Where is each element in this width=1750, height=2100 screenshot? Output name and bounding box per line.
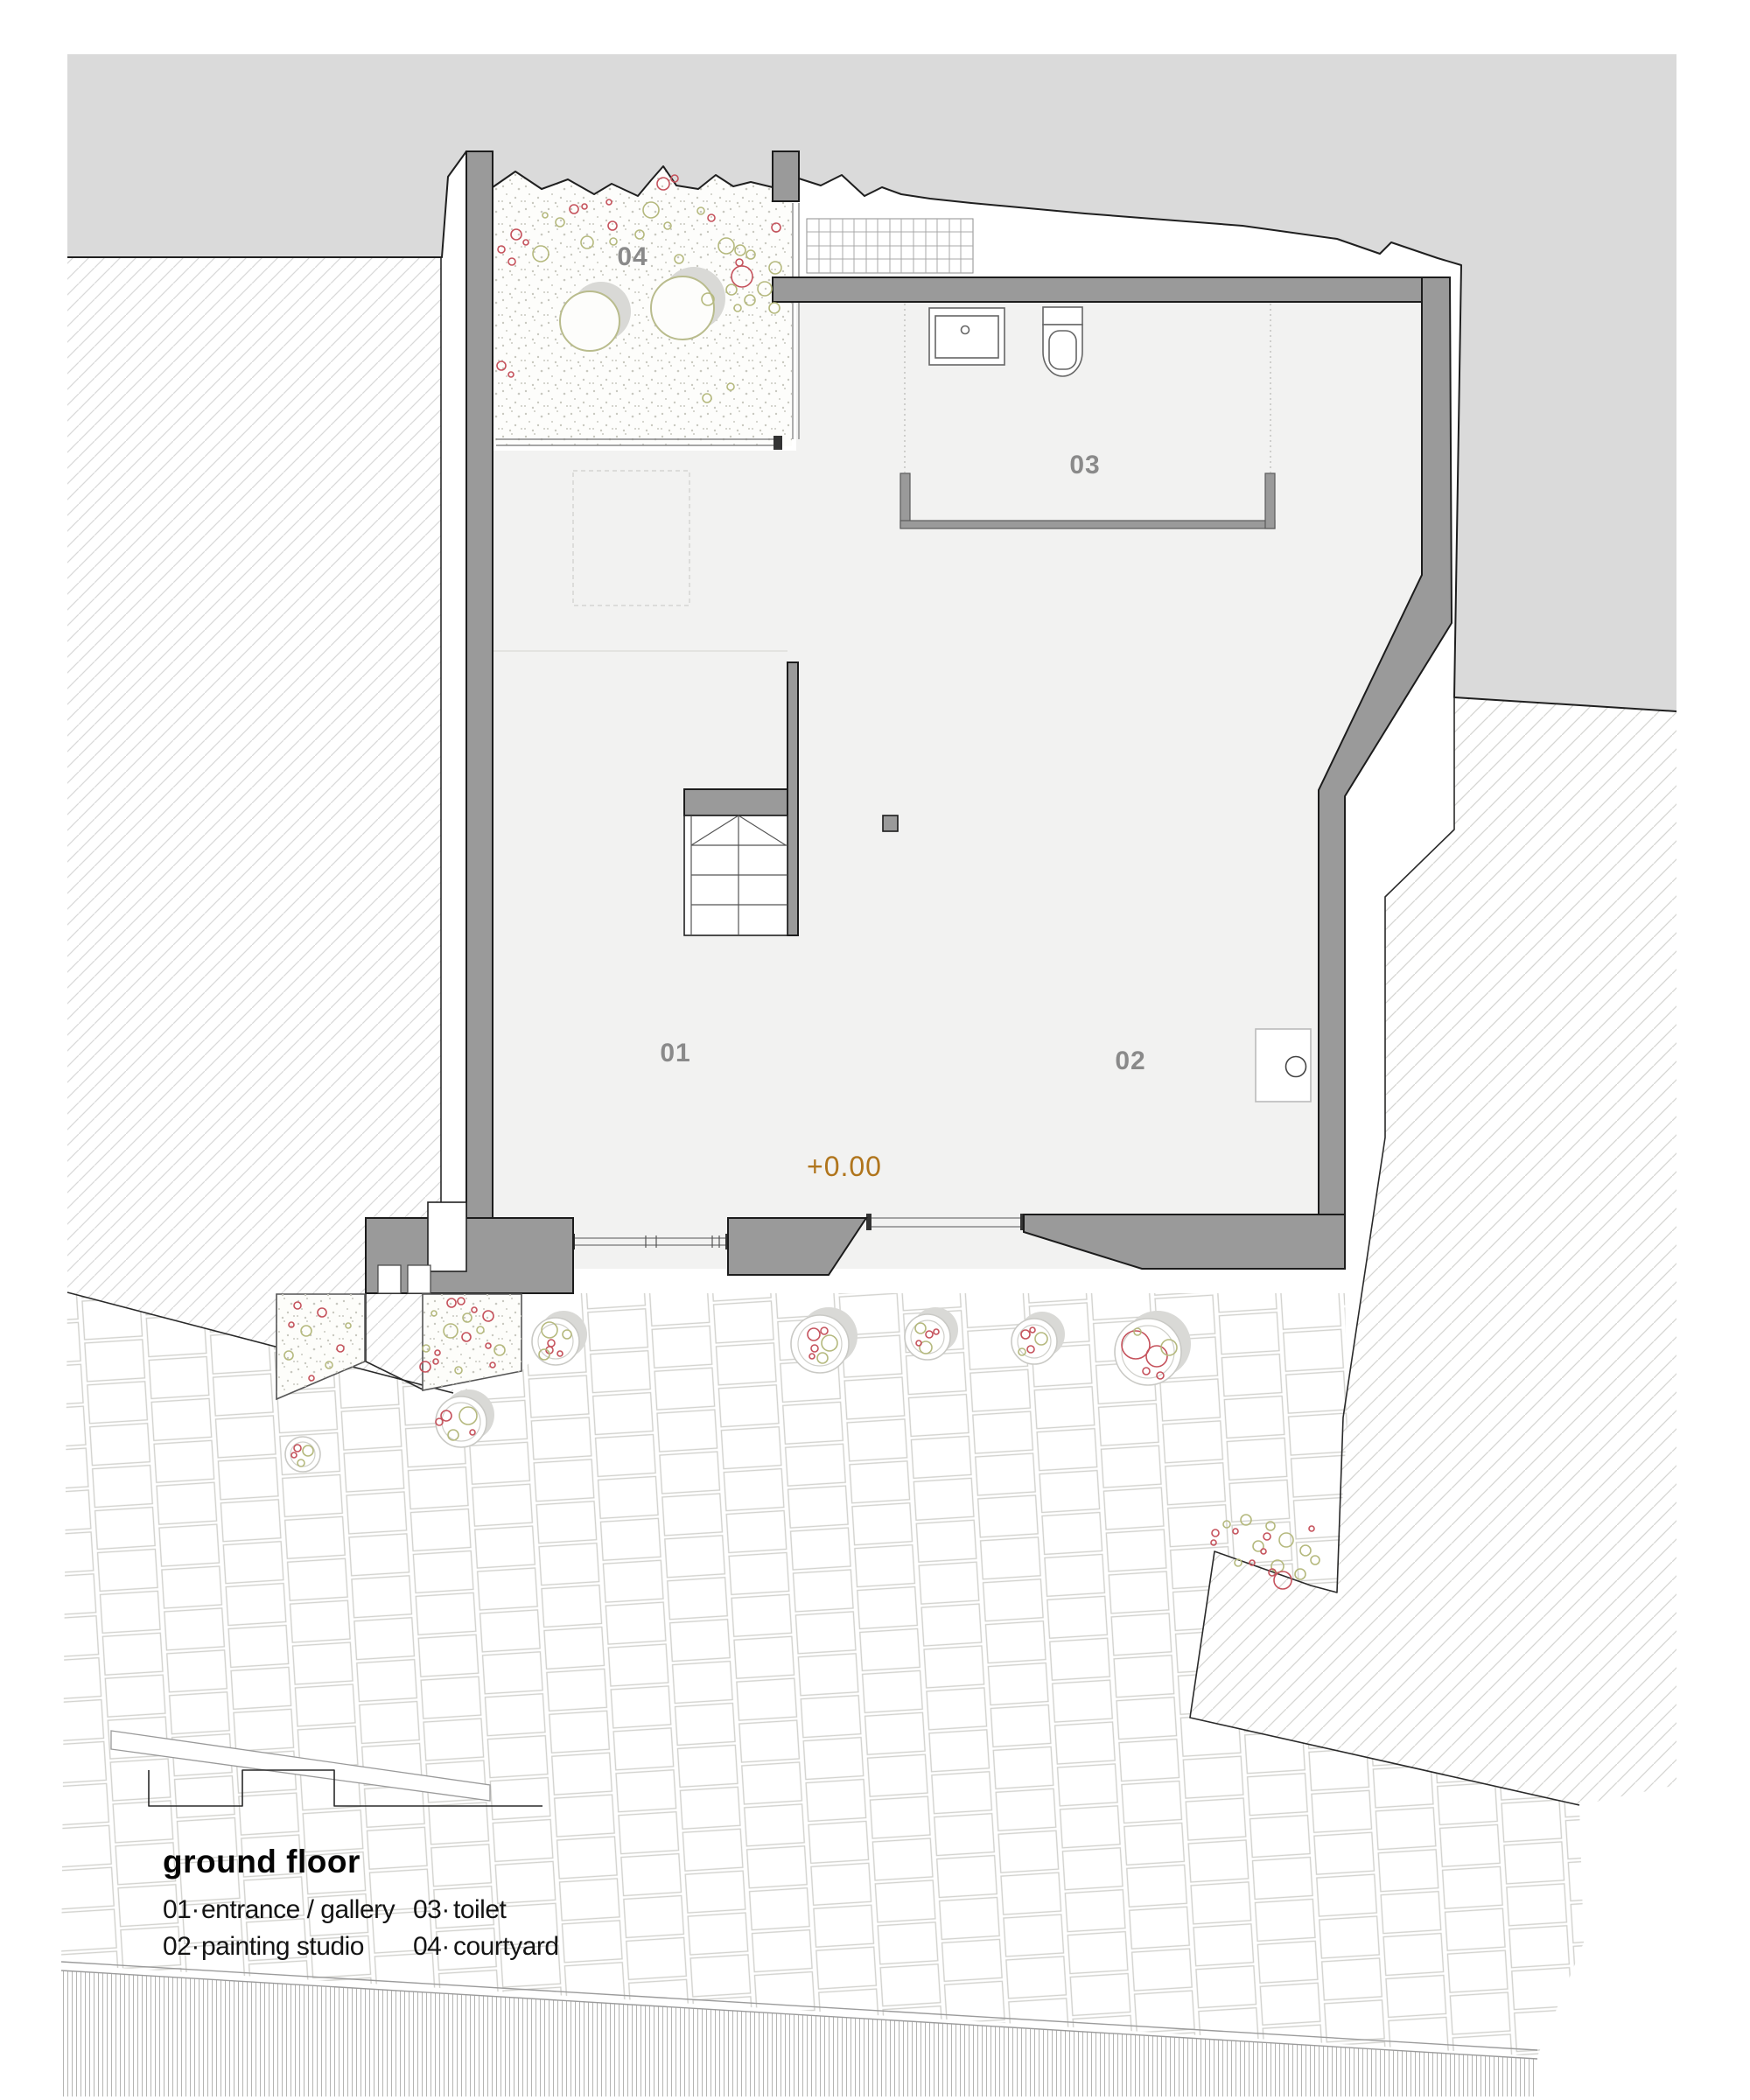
room-label-02: 02 — [1115, 1046, 1145, 1075]
svg-text:03·: 03· — [413, 1895, 450, 1924]
stairs — [684, 815, 787, 935]
svg-text:courtyard: courtyard — [453, 1932, 559, 1961]
entrance-door-recess — [428, 1202, 466, 1271]
porch-step — [378, 1265, 401, 1293]
plan-title: ground floor — [163, 1844, 360, 1879]
svg-text:painting studio: painting studio — [201, 1932, 364, 1961]
toilet-partition-left — [900, 473, 910, 528]
courtyard-area — [493, 168, 792, 446]
legend-item: 02· painting studio — [163, 1932, 364, 1961]
stair-landing-wall — [684, 789, 787, 815]
room-label-04: 04 — [617, 242, 647, 271]
toilet-partition-right — [1265, 473, 1275, 528]
legend-item: 03· toilet — [413, 1895, 507, 1924]
svg-text:01·: 01· — [163, 1895, 199, 1924]
legend-item: 01· entrance / gallery — [163, 1895, 395, 1924]
toilet-wc — [1043, 307, 1082, 376]
floor-plan-drawing: 01 02 03 04 +0.00 ground floor 01· entra… — [0, 0, 1750, 2100]
street-tree — [285, 1437, 320, 1472]
legend-item: 04· courtyard — [413, 1932, 559, 1961]
courtyard-wall-stub — [773, 151, 799, 201]
structural-column — [883, 815, 898, 831]
toilet-sink — [929, 308, 1004, 365]
svg-text:toilet: toilet — [453, 1895, 507, 1924]
room-label-03: 03 — [1069, 451, 1100, 479]
porch-step — [408, 1265, 430, 1293]
top-exterior-wall — [773, 277, 1450, 302]
svg-text:02·: 02· — [163, 1932, 199, 1961]
toilet-partition-bottom — [900, 521, 1275, 528]
stair-spine-wall — [787, 662, 798, 935]
studio-equipment-box — [1256, 1029, 1311, 1102]
left-exterior-wall — [466, 151, 493, 1218]
room-label-01: 01 — [660, 1039, 690, 1067]
svg-text:04·: 04· — [413, 1932, 450, 1961]
level-marker: +0.00 — [807, 1151, 882, 1182]
svg-text:entrance / gallery: entrance / gallery — [201, 1895, 395, 1924]
